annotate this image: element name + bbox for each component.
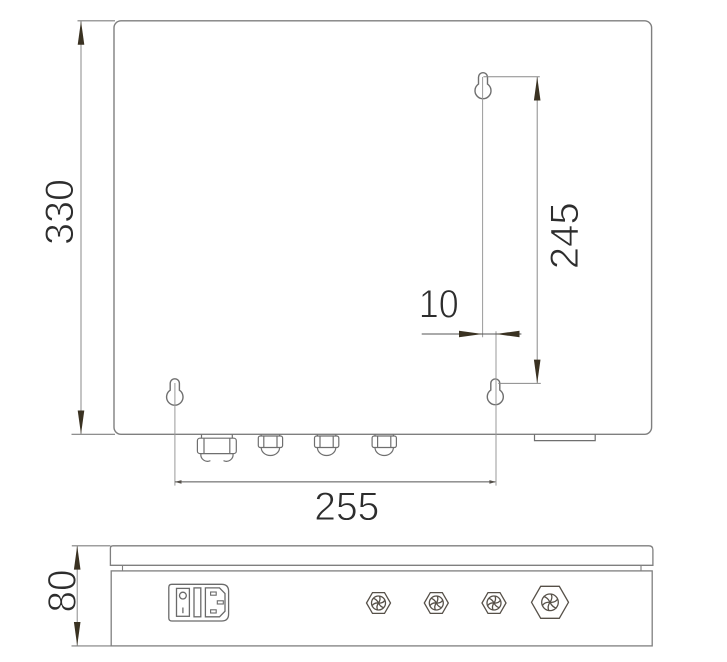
svg-text:10: 10 [419, 282, 459, 326]
svg-text:80: 80 [41, 570, 85, 613]
svg-text:245: 245 [543, 202, 587, 269]
svg-text:255: 255 [314, 485, 379, 529]
svg-text:330: 330 [38, 179, 82, 245]
